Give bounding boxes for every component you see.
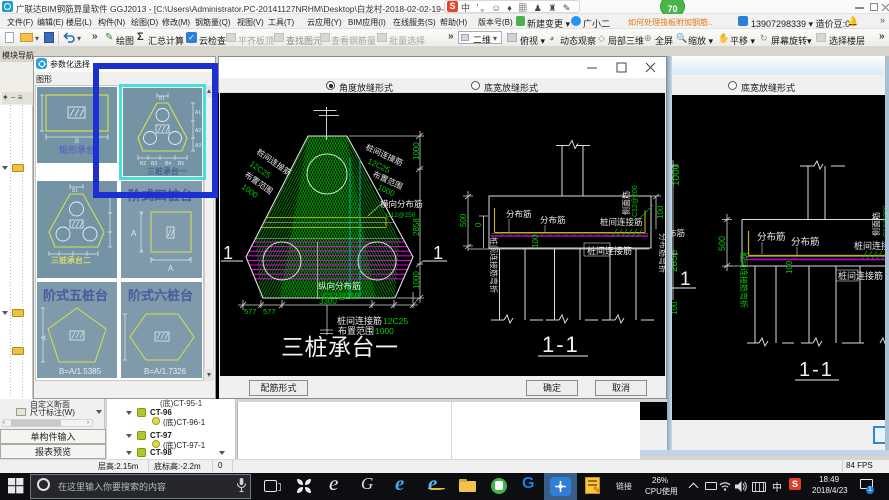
svg-text:分布筋: 分布筋 — [506, 209, 532, 219]
svg-text:桩间连接筋弯折: 桩间连接筋弯折 — [489, 237, 499, 293]
svg-text:1-1: 1-1 — [542, 332, 580, 357]
svg-text:分布筋: 分布筋 — [757, 231, 786, 243]
svg-text:500: 500 — [717, 236, 727, 251]
svg-text:1-1: 1-1 — [799, 359, 834, 381]
svg-text:桩间连接筋: 桩间连接筋 — [854, 240, 889, 251]
svg-text:B1: B1 — [72, 188, 78, 194]
svg-text:1: 1 — [680, 269, 691, 290]
svg-text:A: A — [41, 335, 48, 340]
svg-text:1: 1 — [223, 243, 233, 263]
svg-text:矩形承台: 矩形承台 — [58, 144, 95, 155]
svg-text:B=A/1.7326: B=A/1.7326 — [144, 367, 187, 376]
svg-text:侧面筋: 侧面筋 — [871, 212, 881, 236]
svg-text:1: 1 — [433, 243, 443, 263]
svg-text:A: A — [168, 264, 174, 273]
svg-text:100: 100 — [531, 234, 540, 248]
svg-text:12C25: 12C25 — [383, 316, 408, 326]
svg-text:10d: 10d — [656, 206, 665, 219]
svg-text:桩间连接筋: 桩间连接筋 — [600, 217, 643, 227]
svg-text:分布筋: 分布筋 — [540, 215, 566, 225]
svg-text:1000: 1000 — [412, 271, 421, 289]
svg-text:B=A/1.5385: B=A/1.5385 — [59, 367, 102, 376]
svg-text:分布筋弯折: 分布筋弯折 — [658, 233, 665, 273]
svg-text:500: 500 — [459, 213, 468, 227]
svg-text:100: 100 — [785, 260, 794, 274]
svg-text:C12@250: C12@250 — [323, 292, 360, 301]
svg-text:577: 577 — [244, 307, 257, 316]
svg-text:阶式五桩台: 阶式五桩台 — [43, 288, 108, 303]
svg-text:桩间连接筋弯折: 桩间连接筋弯折 — [739, 252, 749, 308]
svg-text:侧面筋: 侧面筋 — [621, 191, 631, 215]
svg-text:桩间连接筋: 桩间连接筋 — [337, 315, 382, 326]
svg-text:纵向分布筋: 纵向分布筋 — [318, 281, 361, 291]
svg-text:0: 0 — [474, 222, 483, 227]
svg-text:1000: 1000 — [412, 142, 421, 160]
svg-text:三桩承台二: 三桩承台二 — [51, 255, 91, 265]
svg-text:分布筋: 分布筋 — [791, 236, 820, 248]
svg-text:桩间连接筋: 桩间连接筋 — [587, 245, 632, 256]
svg-text:阶式六桩台: 阶式六桩台 — [128, 288, 193, 303]
svg-text:横向分布筋: 横向分布筋 — [380, 199, 423, 209]
svg-text:577: 577 — [263, 307, 276, 316]
svg-text:2858: 2858 — [412, 218, 421, 236]
svg-text:C12@200: C12@200 — [632, 185, 639, 217]
svg-text:桩间连接筋: 桩间连接筋 — [838, 270, 883, 281]
svg-text:A: A — [131, 229, 137, 238]
svg-text:C12@250: C12@250 — [386, 212, 416, 219]
svg-text:三桩承台一: 三桩承台一 — [281, 334, 399, 360]
